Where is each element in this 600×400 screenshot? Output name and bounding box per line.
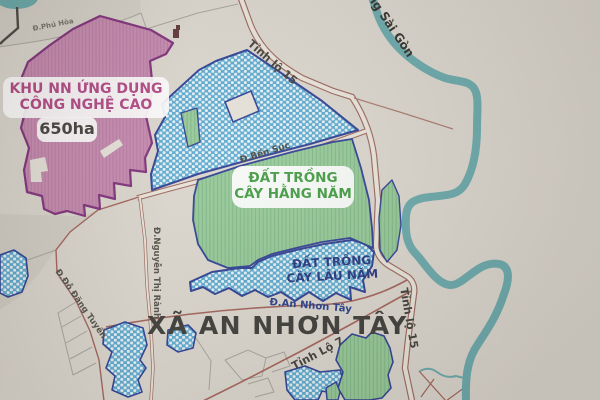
hi-tech-area-badge: 650ha [37,117,97,142]
commune-label: XÃ AN NHƠN TÂY [147,312,391,341]
annual-crops-label-line1: ĐẤT TRỒNG [232,171,354,187]
hi-tech-zone-label-line1: KHU NN ỨNG DỤNG [3,81,169,97]
annual-crops-label: ĐẤT TRỒNG CÂY HẰNG NĂM [232,166,354,208]
hi-tech-zone-label-line2: CÔNG NGHỆ CAO [3,97,169,113]
road-label-nguyen-thi-ranh: Đ.Nguyễn Thị Rành [150,227,160,319]
hi-tech-zone-label: KHU NN ỨNG DỤNG CÔNG NGHỆ CAO [3,77,169,118]
perennial-crops-label: ĐẤT TRỒNG CÂY LÂU NĂM [282,253,381,286]
annual-crops-label-line2: CÂY HẰNG NĂM [232,187,354,203]
planning-map: KHU NN ỨNG DỤNG CÔNG NGHỆ CAO 650ha ĐẤT … [0,0,600,400]
